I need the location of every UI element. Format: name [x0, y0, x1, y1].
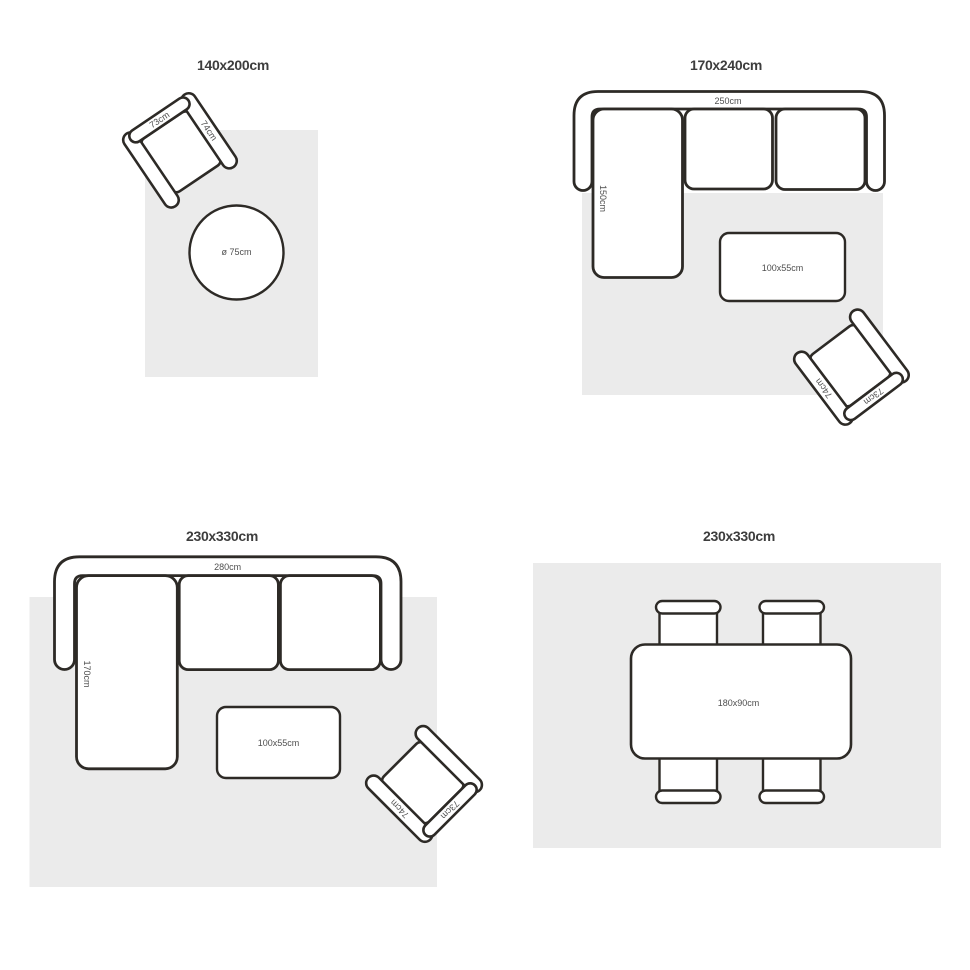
- svg-text:280cm: 280cm: [214, 562, 241, 572]
- svg-text:170x240cm: 170x240cm: [690, 57, 762, 73]
- svg-text:230x330cm: 230x330cm: [186, 528, 258, 544]
- svg-text:170cm: 170cm: [82, 660, 92, 687]
- svg-text:100x55cm: 100x55cm: [762, 263, 804, 273]
- svg-text:230x330cm: 230x330cm: [703, 528, 775, 544]
- svg-text:180x90cm: 180x90cm: [718, 698, 760, 708]
- svg-text:250cm: 250cm: [714, 96, 741, 106]
- svg-text:140x200cm: 140x200cm: [197, 57, 269, 73]
- svg-text:100x55cm: 100x55cm: [258, 738, 300, 748]
- svg-text:ø 75cm: ø 75cm: [221, 247, 251, 257]
- svg-text:150cm: 150cm: [598, 185, 608, 212]
